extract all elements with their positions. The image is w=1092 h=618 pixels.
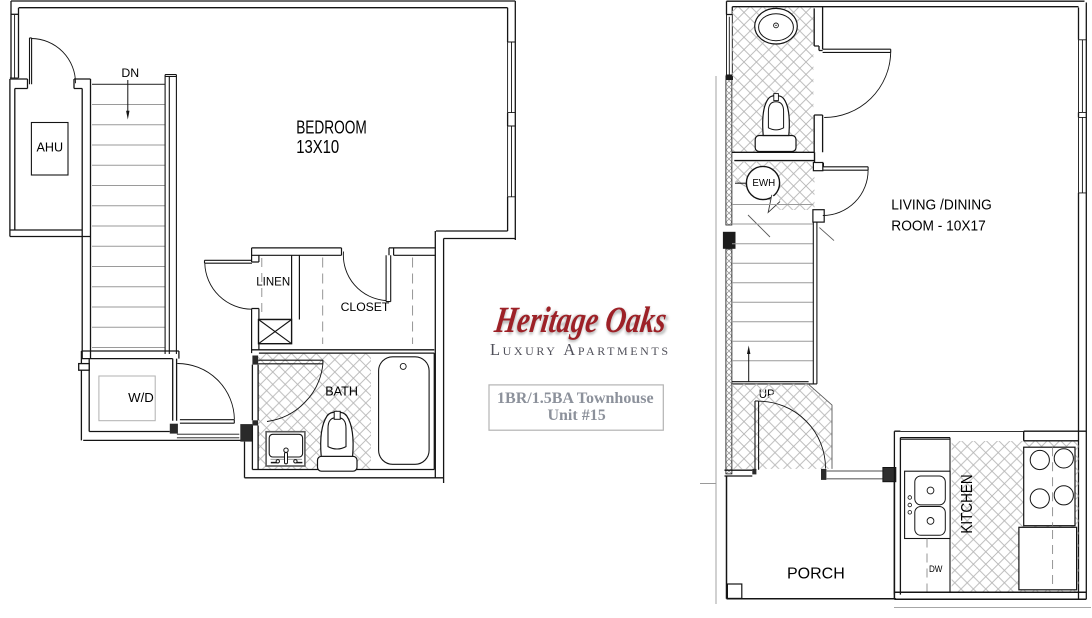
svg-text:W/D: W/D <box>128 390 154 405</box>
svg-text:EWH: EWH <box>752 178 775 189</box>
svg-text:DW: DW <box>929 564 943 575</box>
svg-text:1BR/1.5BA Townhouse: 1BR/1.5BA Townhouse <box>497 390 654 407</box>
svg-text:Heritage Oaks: Heritage Oaks <box>491 300 669 341</box>
svg-text:ROOM - 10X17: ROOM - 10X17 <box>891 218 986 235</box>
svg-text:DN: DN <box>121 66 139 80</box>
svg-text:Unit #15: Unit #15 <box>547 407 605 424</box>
svg-text:BEDROOM: BEDROOM <box>296 116 367 137</box>
svg-text:Luxury Apartments: Luxury Apartments <box>490 340 671 359</box>
svg-text:KITCHEN: KITCHEN <box>959 474 976 533</box>
svg-text:PORCH: PORCH <box>787 565 845 582</box>
svg-text:LINEN: LINEN <box>256 277 290 289</box>
svg-text:CLOSET: CLOSET <box>341 300 390 314</box>
svg-text:13X10: 13X10 <box>296 136 339 157</box>
svg-text:AHU: AHU <box>37 141 64 155</box>
svg-text:LIVING /DINING: LIVING /DINING <box>891 196 992 213</box>
svg-text:BATH: BATH <box>325 385 358 399</box>
